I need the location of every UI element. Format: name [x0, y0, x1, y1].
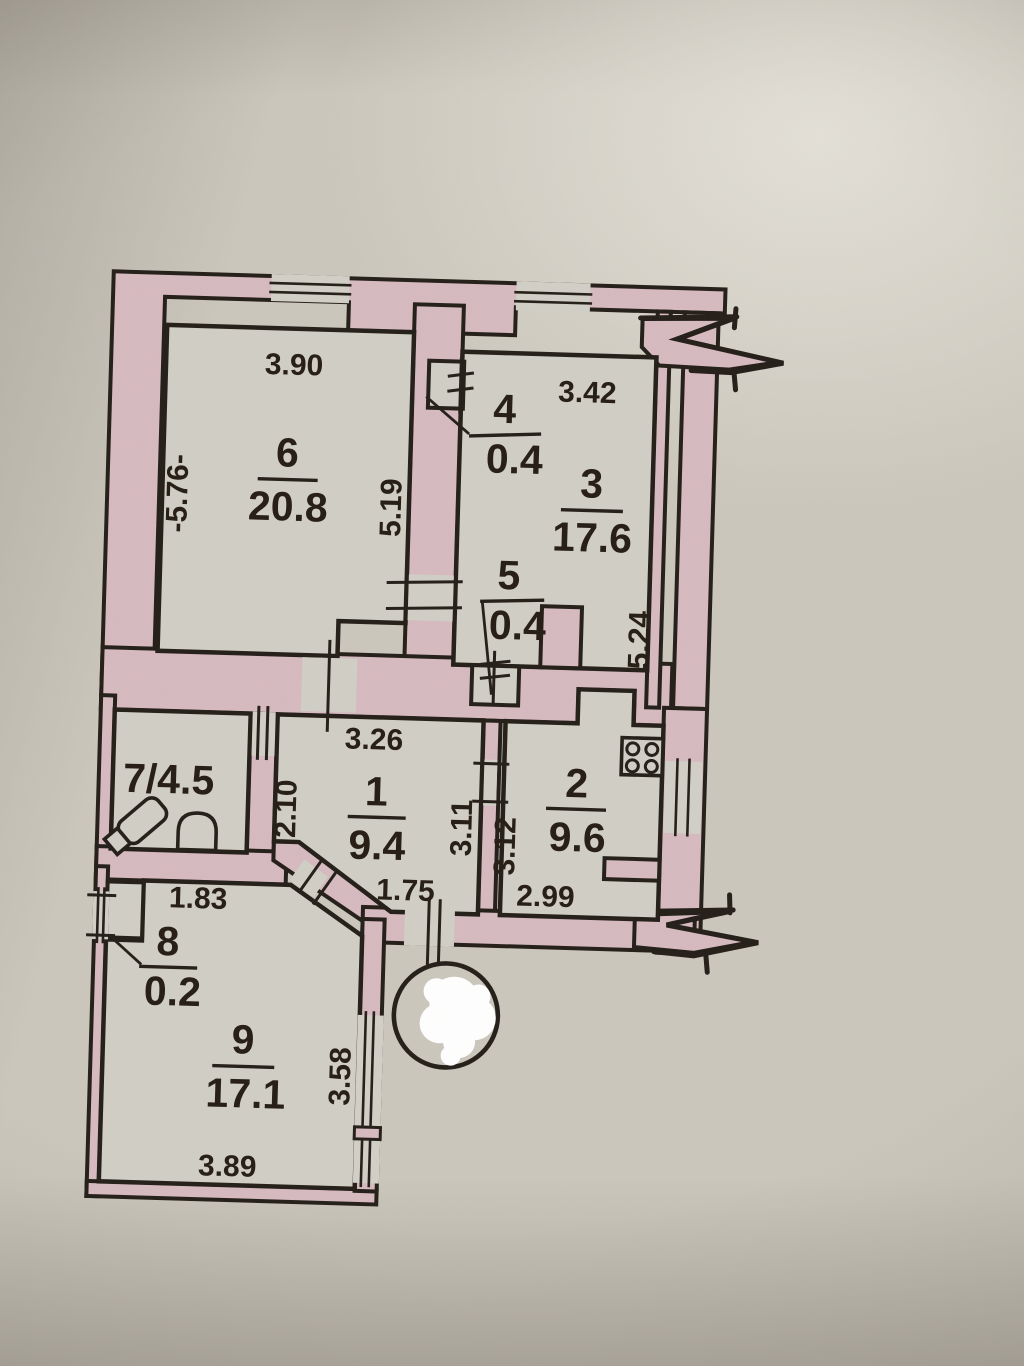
floor-plan-drawing: 6 20.8 3.90 -5.76- 5.19 4 0.4 3.42 3 17.… — [0, 0, 1024, 1366]
paper-texture-overlay — [0, 0, 1024, 1366]
photo-of-floor-plan: 6 20.8 3.90 -5.76- 5.19 4 0.4 3.42 3 17.… — [0, 0, 1024, 1366]
